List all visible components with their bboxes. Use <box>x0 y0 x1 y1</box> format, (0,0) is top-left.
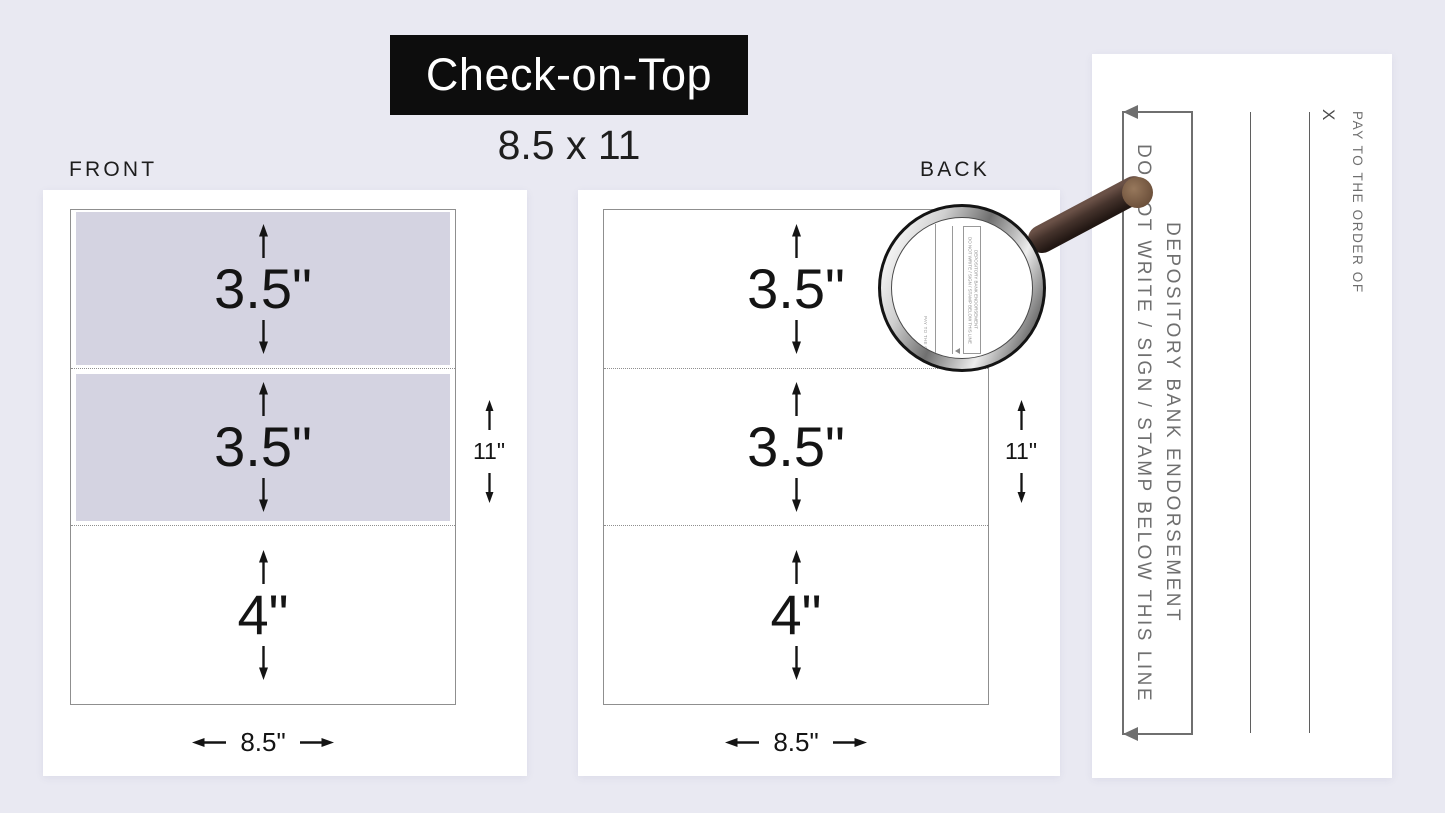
back-section-2: 3.5" <box>604 369 988 525</box>
up-arrow-icon <box>482 400 497 430</box>
back-sheet-width-callout: 8.5" <box>696 724 896 760</box>
section-height-label: 3.5" <box>747 261 845 317</box>
pay-to-order-label: PAY TO THE ORDER OF <box>1350 111 1365 294</box>
front-section-2: 3.5" <box>71 369 455 525</box>
endorsement-bank-text: DEPOSITORY BANK ENDORSEMENT <box>1161 222 1183 623</box>
right-arrow-icon <box>300 735 334 750</box>
down-arrow-icon <box>789 478 804 512</box>
back-sheet-height-callout: 11" <box>998 400 1044 503</box>
back-section-3: 4" <box>604 526 988 703</box>
front-section-1: 3.5" <box>71 210 455 368</box>
down-arrow-icon <box>482 473 497 503</box>
up-arrow-icon <box>789 382 804 416</box>
down-arrow-icon <box>789 646 804 680</box>
down-arrow-icon <box>256 320 271 354</box>
sign-here-x: X <box>1318 109 1338 120</box>
up-arrow-icon <box>256 382 271 416</box>
pay-to-order-micro-label: PAY TO THE ORDER OF <box>923 316 928 359</box>
endorsement-warning-micro-text: DO NOT WRITE / SIGN / STAMP BELOW THIS L… <box>967 237 972 344</box>
left-arrow-icon <box>1123 727 1138 741</box>
left-arrow-icon <box>725 735 759 750</box>
sheet-width-label: 8.5" <box>240 727 285 758</box>
endorsement-signature-line <box>935 224 936 354</box>
front-label: FRONT <box>69 158 157 182</box>
left-arrow-icon <box>1123 105 1138 119</box>
section-height-label: 4" <box>770 587 821 643</box>
right-arrow-icon <box>833 735 867 750</box>
check-on-top-diagram: Check-on-Top 8.5 x 11 FRONT BACK 3.5" 3.… <box>0 0 1445 813</box>
front-sheet-width-callout: 8.5" <box>163 724 363 760</box>
up-arrow-icon <box>789 550 804 584</box>
front-section-3: 4" <box>71 526 455 703</box>
sheet-size-label: 8.5 x 11 <box>390 122 748 169</box>
title-banner: Check-on-Top <box>390 35 748 115</box>
endorsement-signature-line <box>1309 112 1310 733</box>
up-arrow-icon <box>1014 400 1029 430</box>
down-arrow-icon <box>789 320 804 354</box>
magnifier-handle-cap <box>1122 177 1153 208</box>
endorsement-signature-line <box>952 226 953 354</box>
down-arrow-icon <box>256 478 271 512</box>
section-height-label: 4" <box>237 587 288 643</box>
front-sheet: 3.5" 3.5" 4" <box>70 209 456 705</box>
endorsement-area-box-micro: DO NOT WRITE / SIGN / STAMP BELOW THIS L… <box>963 226 981 354</box>
section-height-label: 3.5" <box>747 419 845 475</box>
left-arrow-icon <box>192 735 226 750</box>
section-height-label: 3.5" <box>214 261 312 317</box>
front-sheet-height-callout: 11" <box>466 400 512 503</box>
endorsement-signature-line <box>1250 112 1251 733</box>
endorsement-bank-micro-text: DEPOSITORY BANK ENDORSEMENT <box>973 250 978 329</box>
down-arrow-icon <box>256 646 271 680</box>
magnifier-lens-view: PAY TO THE ORDER OF DO NOT WRITE / SIGN … <box>891 217 1033 359</box>
sheet-width-label: 8.5" <box>773 727 818 758</box>
back-label: BACK <box>920 158 990 182</box>
sheet-height-label: 11" <box>473 438 505 465</box>
up-arrow-icon <box>256 224 271 258</box>
up-arrow-icon <box>256 550 271 584</box>
section-height-label: 3.5" <box>214 419 312 475</box>
up-arrow-icon <box>789 224 804 258</box>
sheet-height-label: 11" <box>1005 438 1037 465</box>
down-arrow-icon <box>1014 473 1029 503</box>
title-text: Check-on-Top <box>426 49 712 101</box>
endorsement-zoom-panel: DO NOT WRITE / SIGN / STAMP BELOW THIS L… <box>1092 54 1392 778</box>
endorsement-warning-text: DO NOT WRITE / SIGN / STAMP BELOW THIS L… <box>1132 144 1154 703</box>
left-arrow-icon <box>955 348 960 354</box>
